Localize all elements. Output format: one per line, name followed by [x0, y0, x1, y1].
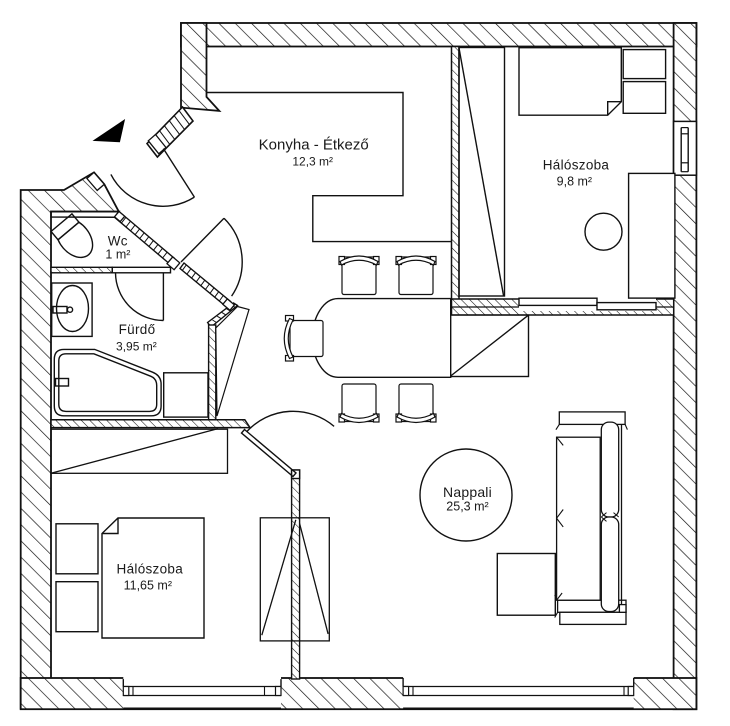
- svg-text:Wc: Wc: [108, 233, 128, 248]
- svg-text:11,65 m²: 11,65 m²: [124, 579, 172, 593]
- svg-text:Fürdő: Fürdő: [119, 322, 156, 337]
- svg-text:Nappali: Nappali: [443, 484, 492, 500]
- svg-text:9,8 m²: 9,8 m²: [557, 174, 592, 188]
- svg-text:Hálószoba: Hálószoba: [117, 562, 184, 577]
- svg-text:12,3 m²: 12,3 m²: [292, 155, 333, 169]
- svg-text:1 m²: 1 m²: [105, 248, 130, 262]
- svg-text:3,95 m²: 3,95 m²: [116, 340, 157, 354]
- svg-text:Hálószoba: Hálószoba: [543, 158, 610, 173]
- svg-text:25,3 m²: 25,3 m²: [446, 500, 488, 514]
- svg-text:Konyha - Étkező: Konyha - Étkező: [259, 137, 369, 154]
